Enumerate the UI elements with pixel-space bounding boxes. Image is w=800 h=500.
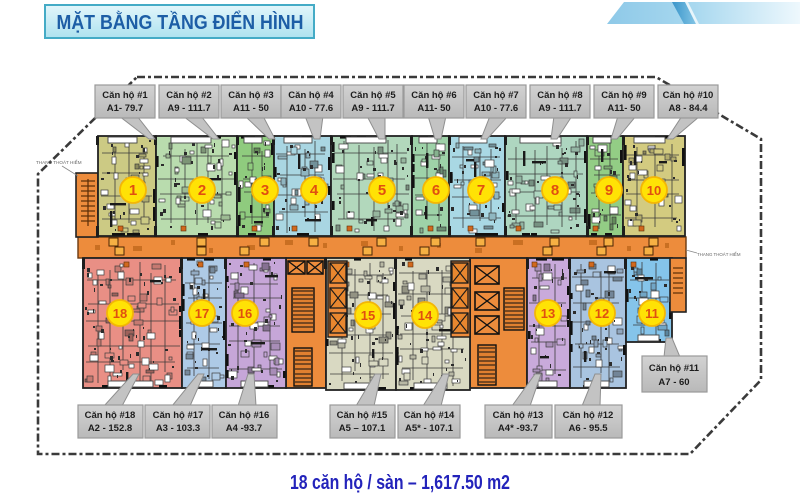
svg-text:Căn hộ #15: Căn hộ #15 xyxy=(337,410,388,421)
svg-text:A4 -93.7: A4 -93.7 xyxy=(226,423,262,434)
svg-text:7: 7 xyxy=(477,182,485,199)
svg-text:18 căn hộ / sàn – 1,617.50 m2: 18 căn hộ / sàn – 1,617.50 m2 xyxy=(290,472,510,494)
svg-text:A8 - 84.4: A8 - 84.4 xyxy=(668,103,708,114)
svg-text:2: 2 xyxy=(198,182,206,199)
svg-text:11: 11 xyxy=(645,306,659,321)
svg-text:14: 14 xyxy=(418,308,433,323)
svg-text:A11- 50: A11- 50 xyxy=(417,103,450,114)
svg-text:A10 - 77.6: A10 - 77.6 xyxy=(474,103,518,114)
svg-text:A7 - 60: A7 - 60 xyxy=(658,377,689,388)
svg-text:A11 - 50: A11 - 50 xyxy=(233,103,269,114)
svg-text:A10 - 77.6: A10 - 77.6 xyxy=(289,103,333,114)
svg-text:Căn hộ #3: Căn hộ #3 xyxy=(228,90,273,101)
svg-text:Căn hộ #16: Căn hộ #16 xyxy=(219,410,270,421)
svg-text:A2 - 152.8: A2 - 152.8 xyxy=(88,423,132,434)
svg-text:Căn hộ #12: Căn hộ #12 xyxy=(563,410,614,421)
svg-text:Căn hộ #2: Căn hộ #2 xyxy=(166,90,211,101)
svg-text:5: 5 xyxy=(378,182,386,199)
svg-text:Căn hộ #1: Căn hộ #1 xyxy=(102,90,148,101)
svg-text:Căn hộ #17: Căn hộ #17 xyxy=(153,410,204,421)
svg-text:Căn hộ #14: Căn hộ #14 xyxy=(404,410,455,421)
svg-text:Căn hộ #6: Căn hộ #6 xyxy=(411,90,456,101)
svg-text:15: 15 xyxy=(361,308,375,323)
svg-text:Căn hộ #11: Căn hộ #11 xyxy=(649,363,700,374)
svg-text:8: 8 xyxy=(551,182,559,199)
svg-text:Căn hộ #18: Căn hộ #18 xyxy=(85,410,136,421)
svg-text:Căn hộ #9: Căn hộ #9 xyxy=(601,90,646,101)
svg-text:Căn hộ #4: Căn hộ #4 xyxy=(288,90,334,101)
svg-text:A11- 50: A11- 50 xyxy=(607,103,640,114)
svg-text:4: 4 xyxy=(310,182,319,199)
svg-text:13: 13 xyxy=(541,306,555,321)
svg-text:A5* - 107.1: A5* - 107.1 xyxy=(405,423,454,434)
svg-text:Căn hộ #10: Căn hộ #10 xyxy=(663,90,714,101)
svg-text:6: 6 xyxy=(432,182,440,199)
svg-text:A3 - 103.3: A3 - 103.3 xyxy=(156,423,200,434)
svg-text:A5 – 107.1: A5 – 107.1 xyxy=(339,423,386,434)
svg-text:16: 16 xyxy=(238,306,252,321)
svg-text:Căn hộ #8: Căn hộ #8 xyxy=(537,90,582,101)
svg-text:A1- 79.7: A1- 79.7 xyxy=(107,103,143,114)
svg-text:THANG THOÁT HIỂM: THANG THOÁT HIỂM xyxy=(36,159,82,165)
svg-text:10: 10 xyxy=(647,183,661,198)
svg-text:THANG THOÁT HIỂM: THANG THOÁT HIỂM xyxy=(697,252,741,257)
svg-text:Căn hộ #5: Căn hộ #5 xyxy=(350,90,396,101)
svg-text:MẶT BẰNG TẦNG ĐIỂN HÌNH: MẶT BẰNG TẦNG ĐIỂN HÌNH xyxy=(57,10,304,34)
svg-text:3: 3 xyxy=(261,182,269,199)
svg-text:12: 12 xyxy=(595,306,609,321)
svg-text:A9 - 111.7: A9 - 111.7 xyxy=(351,103,394,114)
svg-text:18: 18 xyxy=(113,306,127,321)
svg-text:17: 17 xyxy=(195,306,209,321)
svg-text:A9 - 111.7: A9 - 111.7 xyxy=(538,103,581,114)
svg-text:Căn hộ #7: Căn hộ #7 xyxy=(473,90,518,101)
svg-text:A4* -93.7: A4* -93.7 xyxy=(498,423,538,434)
svg-text:9: 9 xyxy=(605,182,613,199)
svg-text:1: 1 xyxy=(129,182,137,199)
svg-text:A6 - 95.5: A6 - 95.5 xyxy=(568,423,608,434)
svg-text:Căn hộ #13: Căn hộ #13 xyxy=(493,410,544,421)
svg-text:A9 - 111.7: A9 - 111.7 xyxy=(167,103,210,114)
